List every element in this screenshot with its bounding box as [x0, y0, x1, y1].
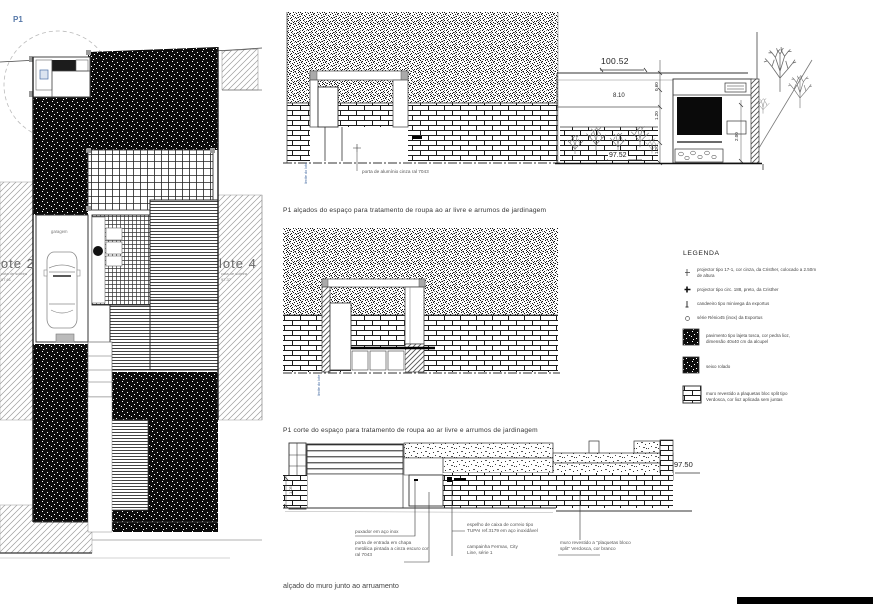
elevations-caption: P1 alçados do espaço para tratamento de … — [283, 207, 546, 216]
dim-total: 100.52 — [601, 56, 629, 67]
annex-building — [29, 50, 91, 97]
drawing-sheet: P1 lote 2 cota de soleira 97.61 lote 4 c… — [0, 0, 874, 604]
level-9752: 97.52 — [608, 151, 628, 160]
room-middle — [110, 305, 150, 370]
level-9750: 97.50 — [674, 460, 693, 470]
lote2-level: 97.61 — [1, 277, 11, 282]
gate-header — [310, 71, 408, 80]
right-elevation-drawing — [555, 32, 812, 170]
gate-lamellas — [307, 444, 403, 474]
boundary-pier — [751, 79, 759, 163]
legend-item-4: série Rénio45 (inox) da Exportus — [697, 315, 857, 321]
title-block-bar — [737, 597, 873, 604]
dim-h2: 1.20 — [654, 111, 660, 120]
dim-h3: 1.20 — [654, 145, 660, 154]
lote4-sub-label: cota de soleira — [221, 271, 247, 276]
door-label: porta de alumínio cinza ral 7043 — [362, 169, 429, 175]
lote4-level: 97.37 — [221, 277, 231, 282]
dim-width: 8.10 — [612, 93, 626, 101]
legend-item-2: projector tipo circ. 188, preto, da Cris… — [697, 287, 857, 293]
pebble-swatch — [683, 357, 699, 373]
dim-left-105: 1.05 — [288, 486, 293, 494]
tree-sketch — [764, 47, 796, 92]
plan-marker — [40, 70, 48, 79]
neighbor-hatch-top-right — [222, 49, 258, 90]
legend-swatch-3-label: muro revestido a plaquetas bloc split ti… — [706, 391, 806, 403]
door-handle — [414, 479, 418, 481]
door-panel — [330, 303, 351, 370]
sheet-p1-label: P1 — [13, 15, 23, 25]
aluminium-door — [318, 87, 338, 127]
middle-section-drawing — [283, 228, 560, 373]
garden-area-bottom-left — [33, 344, 88, 522]
entry-structure — [673, 79, 752, 163]
gravel-band-a — [404, 443, 553, 458]
entry-gate-panel — [677, 97, 722, 135]
lote4-strip — [218, 195, 262, 420]
dim-door-height: 2.00 — [734, 132, 740, 141]
kitchen-sink — [93, 246, 103, 256]
service-rooms — [88, 342, 112, 532]
brick-street-wall — [443, 473, 673, 508]
wall-finish-label: muro revestido a "plaquetas bloco split"… — [560, 540, 632, 552]
projector-circ-symbol — [685, 287, 691, 293]
dimension-line-total — [600, 68, 647, 72]
room-bedroom — [150, 300, 218, 370]
boundary-label-mid: limite do lote — [317, 375, 322, 396]
brick-left-strip — [283, 475, 307, 508]
bell-label: campainha Fermax, City Line, série 1 — [467, 544, 525, 556]
section-caption: P1 corte do espaço para tratamento de ro… — [283, 427, 538, 436]
garden-area-left — [33, 97, 88, 215]
site-plan — [0, 31, 262, 558]
tree-sketch — [788, 75, 812, 108]
car — [44, 252, 80, 328]
doorbell — [447, 477, 452, 482]
garage-step — [56, 334, 74, 342]
dim-h1: 0.60 — [654, 82, 660, 91]
pier-hatched-left — [322, 287, 330, 372]
legend-item-3: candeeiro tipo minivega da exportus — [697, 301, 857, 307]
inox-series-symbol — [686, 317, 690, 321]
mailbox-label: espelho de caixa de correio tipo TUPAI r… — [467, 522, 539, 534]
gate-header-2 — [322, 279, 425, 287]
entry-door-label: porta de entrada em chapa metálica pinta… — [355, 540, 429, 558]
legend-swatch-1-label: pavimento tipo lajeta tosca, cor pedra l… — [706, 333, 806, 345]
wall-swatch — [683, 386, 701, 403]
legend-title: LEGENDA — [683, 250, 720, 259]
lote2-sub-label: cota de soleira — [1, 271, 27, 276]
paving-swatch — [683, 329, 699, 345]
lamp-symbol — [686, 301, 689, 307]
room-living — [150, 200, 218, 300]
lote2-strip — [0, 182, 33, 420]
top-elevation-drawing — [283, 12, 560, 171]
gravel-band-b — [443, 458, 553, 473]
garage-label: garagem — [51, 229, 68, 234]
boundary-label-top: limite do lote — [304, 163, 309, 184]
projector-17-symbol — [685, 269, 690, 276]
legend-item-1: projector tipo 17-1, cor cinza, da Crist… — [697, 267, 817, 279]
footer-caption: alçado do muro junto ao arruamento — [283, 581, 399, 590]
garden-area-top — [88, 47, 218, 150]
mailbox-plate — [454, 478, 466, 481]
handle-label: puxador em aço inox — [355, 529, 399, 535]
legend-swatch-2-label: seixo rolado — [706, 364, 806, 370]
